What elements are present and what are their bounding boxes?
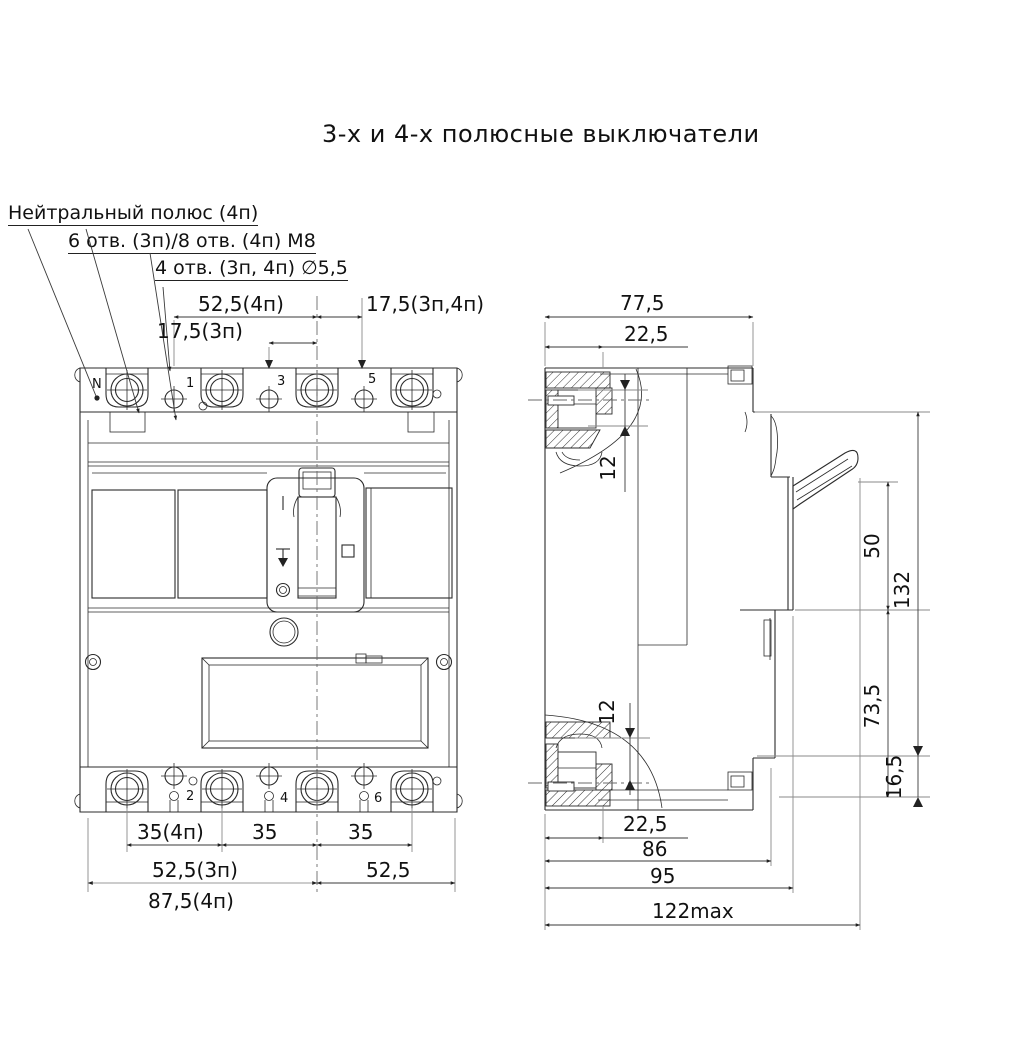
- label-pole-2: 2: [186, 789, 194, 804]
- label-pole-5: 5: [368, 372, 376, 387]
- dim-132: 132: [890, 571, 914, 609]
- bottom-terminals: [106, 763, 441, 812]
- label-pole-4: 4: [280, 791, 288, 806]
- dim-87-5-4p: 87,5(4п): [148, 889, 234, 913]
- dim-52-5: 52,5: [366, 858, 411, 882]
- front-dimensions: 52,5(4п) 17,5(3п,4п) 17,5(3п) 35(4п) 35 …: [88, 292, 484, 913]
- dim-22-5-top: 22,5: [624, 322, 669, 346]
- dim-122max: 122max: [652, 899, 734, 923]
- handle-area: [267, 468, 364, 612]
- technical-drawing: N 1 3 5 2 4 6: [0, 0, 1036, 1060]
- dim-77-5: 77,5: [620, 291, 665, 315]
- dim-12-top: 12: [596, 455, 620, 480]
- dim-17-5-3p4p: 17,5(3п,4п): [366, 292, 484, 316]
- front-view: N 1 3 5 2 4 6: [75, 296, 463, 892]
- dim-35-4p: 35(4п): [137, 820, 204, 844]
- dim-52-5-3p: 52,5(3п): [152, 858, 238, 882]
- dim-12-bottom: 12: [595, 699, 619, 724]
- bottom-terminal-section: [528, 715, 662, 808]
- label-pole-1: 1: [186, 376, 194, 391]
- label-pole-6: 6: [374, 791, 382, 806]
- top-terminal-section: [528, 369, 652, 473]
- dim-52-5-4p: 52,5(4п): [198, 292, 284, 316]
- top-terminals: [106, 368, 441, 412]
- dim-22-5-bottom: 22,5: [623, 812, 668, 836]
- side-view: [528, 366, 858, 810]
- drawing-page: 3-х и 4-х полюсные выключатели Нейтральн…: [0, 0, 1036, 1060]
- breaker-handle: [793, 450, 858, 509]
- dim-73-5: 73,5: [860, 684, 884, 729]
- dim-95: 95: [650, 864, 675, 888]
- label-pole-3: 3: [277, 374, 285, 389]
- dim-35-b: 35: [348, 820, 373, 844]
- dim-17-5-3p: 17,5(3п): [157, 319, 243, 343]
- dim-16-5: 16,5: [882, 755, 906, 800]
- callout-leaders: [28, 229, 176, 420]
- nameplate: [202, 654, 428, 748]
- dim-86: 86: [642, 837, 667, 861]
- dim-50: 50: [860, 533, 884, 558]
- dim-35-a: 35: [252, 820, 277, 844]
